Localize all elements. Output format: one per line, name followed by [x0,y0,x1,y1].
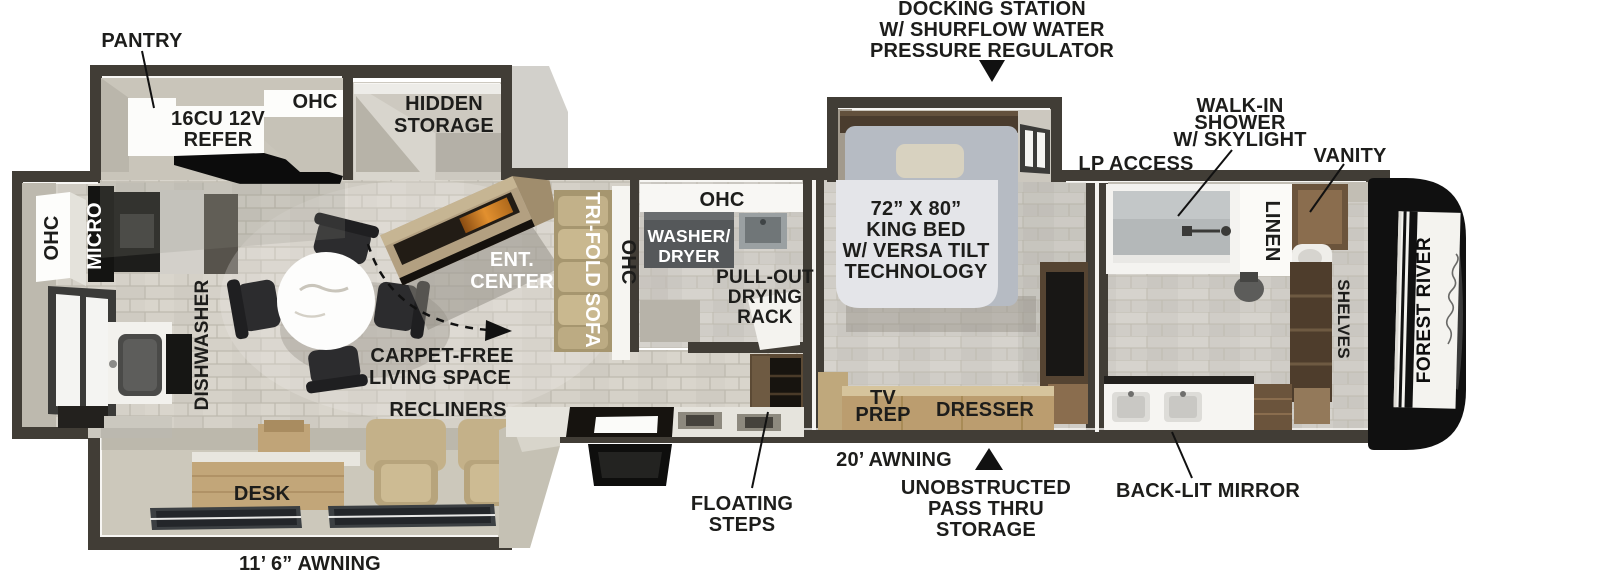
svg-text:STORAGE: STORAGE [936,519,1036,541]
svg-text:DOCKING STATION: DOCKING STATION [898,0,1086,20]
svg-text:72” X 80”: 72” X 80” [871,198,962,220]
svg-text:OHC: OHC [292,91,337,113]
svg-text:PRESSURE REGULATOR: PRESSURE REGULATOR [870,40,1114,62]
svg-text:OHC: OHC [617,239,639,284]
svg-text:SHELVES: SHELVES [1334,279,1353,359]
svg-text:PULL-OUT: PULL-OUT [716,267,814,288]
svg-text:W/ SKYLIGHT: W/ SKYLIGHT [1173,129,1306,151]
svg-text:STORAGE: STORAGE [394,115,494,137]
svg-text:REFER: REFER [184,129,253,151]
svg-text:FLOATING: FLOATING [691,493,793,515]
svg-text:BACK-LIT MIRROR: BACK-LIT MIRROR [1116,480,1300,502]
svg-text:LIVING SPACE: LIVING SPACE [369,367,511,389]
svg-text:RECLINERS: RECLINERS [389,399,506,421]
svg-text:TRI-FOLD SOFA: TRI-FOLD SOFA [581,192,603,348]
svg-text:UNOBSTRUCTED: UNOBSTRUCTED [901,477,1071,499]
svg-text:STEPS: STEPS [709,514,776,536]
svg-text:WASHER/: WASHER/ [647,226,730,246]
svg-text:DRESSER: DRESSER [936,399,1034,421]
svg-text:LINEN: LINEN [1261,201,1283,262]
svg-text:VANITY: VANITY [1313,145,1387,167]
svg-text:FOREST RIVER: FOREST RIVER [1414,237,1435,383]
svg-text:ENT.: ENT. [490,249,534,271]
svg-text:PASS THRU: PASS THRU [928,498,1044,520]
svg-text:20’ AWNING: 20’ AWNING [836,449,952,471]
svg-text:KING BED: KING BED [866,219,965,241]
svg-text:TECHNOLOGY: TECHNOLOGY [844,261,988,283]
svg-text:LP ACCESS: LP ACCESS [1078,153,1193,175]
svg-text:PREP: PREP [855,404,910,426]
svg-text:CARPET-FREE: CARPET-FREE [370,345,513,367]
svg-text:RACK: RACK [737,307,793,328]
svg-text:OHC: OHC [41,215,63,260]
svg-text:16CU 12V: 16CU 12V [171,108,265,130]
svg-text:DRYING: DRYING [728,287,802,308]
svg-text:DESK: DESK [234,483,291,505]
svg-text:11’ 6” AWNING: 11’ 6” AWNING [239,553,381,572]
svg-text:OHC: OHC [699,189,744,211]
svg-text:DRYER: DRYER [658,246,720,266]
svg-text:DISHWASHER: DISHWASHER [192,280,213,411]
svg-text:CENTER: CENTER [470,271,554,293]
svg-text:HIDDEN: HIDDEN [405,93,483,115]
svg-text:W/ SHURFLOW WATER: W/ SHURFLOW WATER [879,19,1105,41]
svg-text:W/ VERSA TILT: W/ VERSA TILT [842,240,989,262]
svg-text:MICRO: MICRO [84,202,106,270]
svg-text:PANTRY: PANTRY [101,30,183,52]
